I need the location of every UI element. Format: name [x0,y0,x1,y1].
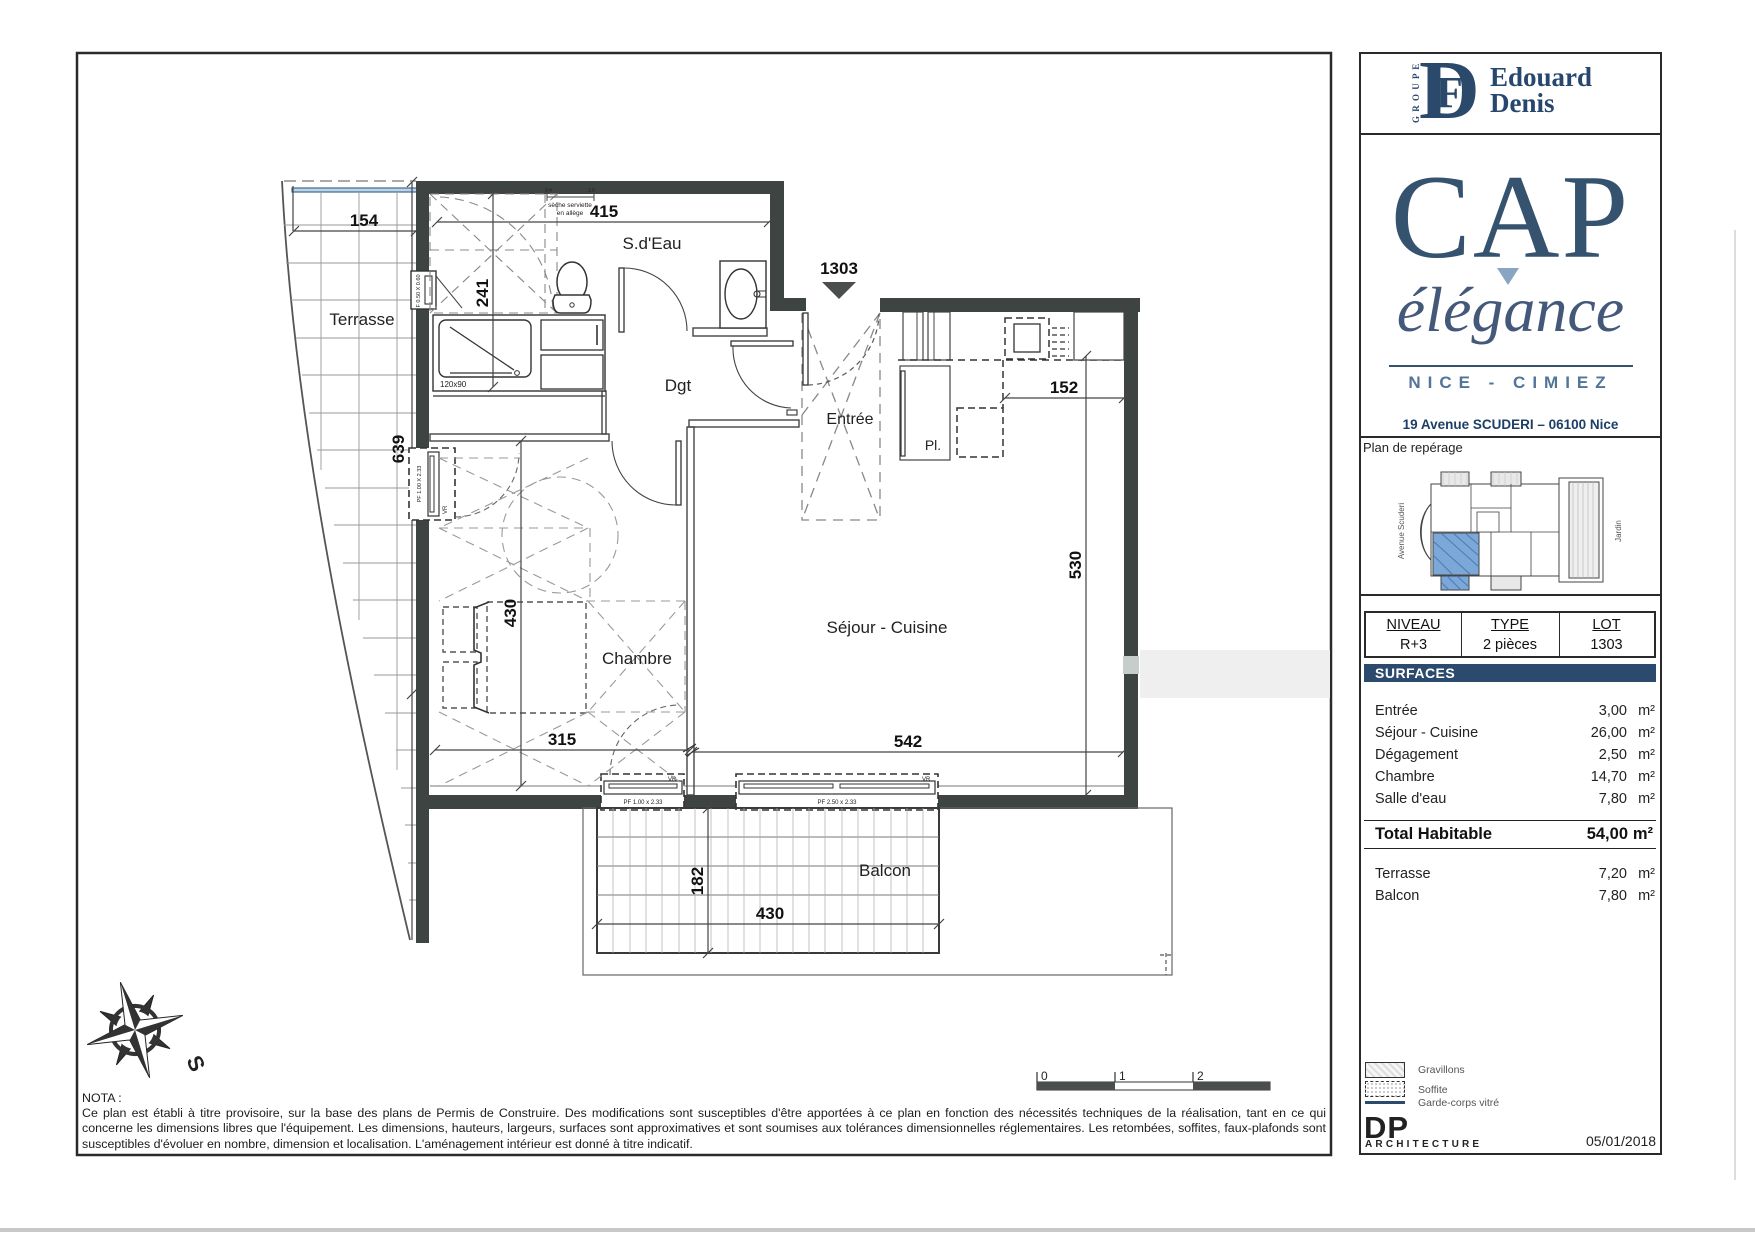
svg-text:Jardin: Jardin [1614,520,1623,542]
svg-text:182: 182 [688,867,707,895]
svg-text:639: 639 [389,435,408,463]
svg-text:0: 0 [1041,1069,1048,1083]
svg-text:415: 415 [590,202,618,221]
svg-text:154: 154 [350,211,379,230]
svg-text:152: 152 [1050,378,1078,397]
svg-text:sèche serviette: sèche serviette [548,202,592,209]
svg-text:120x90: 120x90 [440,380,467,389]
svg-text:Séjour - Cuisine: Séjour - Cuisine [827,618,948,637]
svg-text:1.6: 1.6 [588,188,595,194]
svg-text:530: 530 [1066,551,1085,579]
svg-text:1: 1 [1119,1069,1126,1083]
svg-text:Chambre: Chambre [602,649,672,668]
svg-text:VR: VR [668,777,677,783]
svg-text:430: 430 [756,904,784,923]
svg-text:0.4: 0.4 [545,188,552,194]
svg-text:PF 1.00 x 2.33: PF 1.00 x 2.33 [623,800,663,806]
svg-text:430: 430 [501,599,520,627]
svg-text:315: 315 [548,730,576,749]
svg-text:VR: VR [443,505,449,514]
svg-text:en allège: en allège [557,210,584,217]
svg-text:2: 2 [1197,1069,1204,1083]
svg-text:Pl.: Pl. [925,437,941,453]
svg-text:Dgt: Dgt [665,376,692,395]
svg-text:Terrasse: Terrasse [329,310,394,329]
svg-text:542: 542 [894,732,922,751]
svg-text:1303: 1303 [820,259,858,278]
svg-text:241: 241 [473,279,492,307]
svg-text:PF 1.00 X 2.33: PF 1.00 X 2.33 [417,466,423,503]
svg-text:Entrée: Entrée [826,411,873,428]
svg-text:S.d'Eau: S.d'Eau [622,234,681,253]
svg-text:VR: VR [922,777,931,783]
svg-text:Balcon: Balcon [859,861,911,880]
svg-text:S: S [181,1052,210,1076]
svg-text:Avenue Scuderi: Avenue Scuderi [1397,503,1406,560]
svg-text:F 0.50 X 0.60: F 0.50 X 0.60 [416,274,422,307]
svg-text:PF 2.50 x 2.33: PF 2.50 x 2.33 [817,800,857,806]
